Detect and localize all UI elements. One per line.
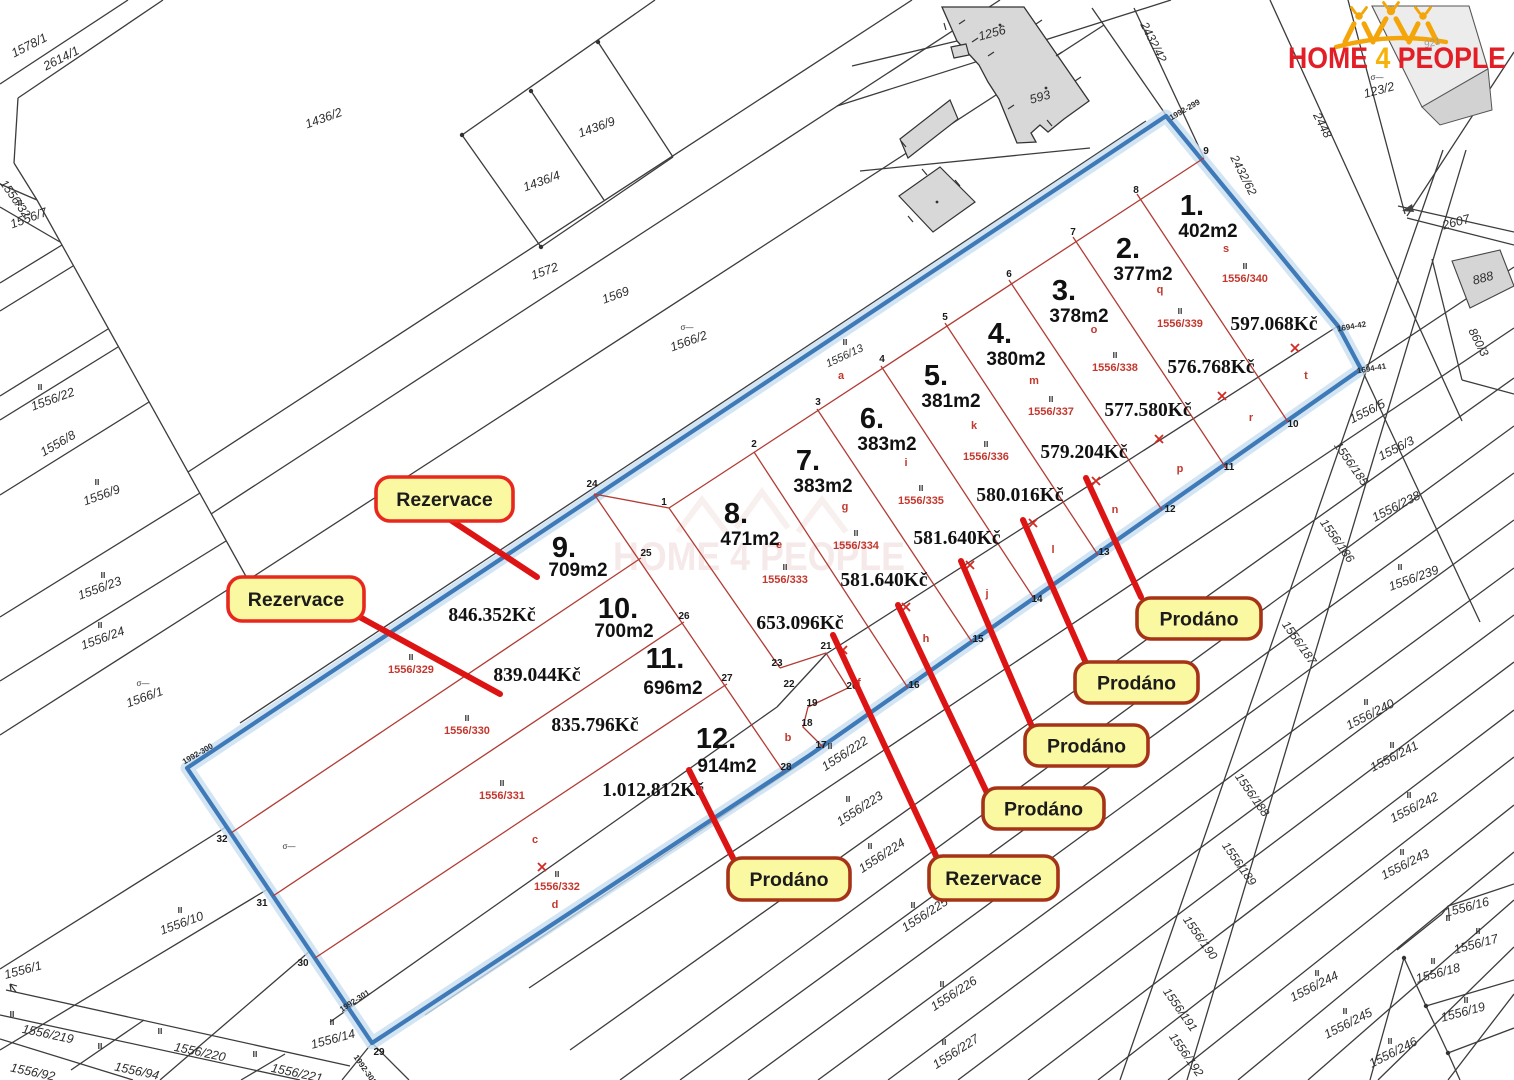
svg-text:Rezervace: Rezervace xyxy=(248,589,345,611)
svg-text:II: II xyxy=(95,477,100,487)
svg-text:835.796Kč: 835.796Kč xyxy=(551,715,639,736)
svg-text:q: q xyxy=(1157,284,1164,296)
svg-text:II: II xyxy=(98,1041,103,1051)
svg-text:Prodáno: Prodáno xyxy=(749,869,828,891)
svg-text:a: a xyxy=(838,370,845,382)
svg-text:380m2: 380m2 xyxy=(986,349,1045,370)
svg-text:II: II xyxy=(984,439,989,449)
svg-text:23: 23 xyxy=(771,658,783,669)
svg-text:r: r xyxy=(1249,412,1254,424)
svg-text:II: II xyxy=(38,382,43,392)
svg-text:II: II xyxy=(940,979,945,989)
svg-text:576.768Kč: 576.768Kč xyxy=(1167,357,1255,378)
svg-text:6: 6 xyxy=(1006,269,1012,280)
svg-text:1556/334: 1556/334 xyxy=(833,540,880,552)
svg-text:Prodáno: Prodáno xyxy=(1004,799,1083,821)
svg-text:1.: 1. xyxy=(1180,190,1204,222)
svg-text:Rezervace: Rezervace xyxy=(396,489,493,511)
svg-text:II: II xyxy=(330,1017,335,1027)
svg-text:7.: 7. xyxy=(796,445,820,477)
svg-text:σ—: σ— xyxy=(283,842,296,851)
svg-text:6.: 6. xyxy=(860,403,884,435)
svg-text:II: II xyxy=(942,1037,947,1047)
svg-text:II: II xyxy=(1243,261,1248,271)
svg-text:II: II xyxy=(1113,350,1118,360)
svg-text:29: 29 xyxy=(373,1047,385,1058)
svg-text:12.: 12. xyxy=(696,723,736,755)
svg-text:1556/337: 1556/337 xyxy=(1028,406,1074,418)
svg-text:1556/336: 1556/336 xyxy=(963,451,1009,463)
svg-text:Prodáno: Prodáno xyxy=(1047,736,1126,758)
svg-text:30: 30 xyxy=(297,958,309,969)
svg-text:i: i xyxy=(904,457,907,469)
svg-text:15: 15 xyxy=(972,634,984,645)
svg-text:914m2: 914m2 xyxy=(697,756,756,777)
svg-text:II: II xyxy=(1446,913,1451,923)
svg-text:s: s xyxy=(1223,243,1229,255)
svg-text:12: 12 xyxy=(1164,504,1176,515)
svg-text:383m2: 383m2 xyxy=(857,434,916,455)
svg-text:3.: 3. xyxy=(1052,275,1076,307)
svg-text:1556/339: 1556/339 xyxy=(1157,318,1203,330)
svg-text:II: II xyxy=(1343,1006,1348,1016)
svg-text:II: II xyxy=(1390,740,1395,750)
svg-text:Prodáno: Prodáno xyxy=(1159,609,1238,631)
svg-text:II: II xyxy=(1315,968,1320,978)
svg-text:7: 7 xyxy=(1070,227,1076,238)
svg-text:377m2: 377m2 xyxy=(1113,264,1172,285)
svg-text:p: p xyxy=(1177,463,1184,475)
svg-text:597.068Kč: 597.068Kč xyxy=(1230,314,1318,335)
svg-text:d: d xyxy=(552,899,559,911)
svg-text:j: j xyxy=(984,588,988,600)
svg-text:HOME 4 PEOPLE: HOME 4 PEOPLE xyxy=(1288,42,1506,75)
svg-text:577.580Kč: 577.580Kč xyxy=(1104,400,1192,421)
svg-text:13: 13 xyxy=(1098,547,1110,558)
svg-text:24: 24 xyxy=(586,479,598,490)
svg-text:19: 19 xyxy=(806,698,818,709)
svg-text:II: II xyxy=(555,869,560,879)
svg-text:846.352Kč: 846.352Kč xyxy=(448,605,536,626)
svg-text:II: II xyxy=(843,337,848,347)
svg-text:II: II xyxy=(1398,562,1403,572)
svg-text:653.096Kč: 653.096Kč xyxy=(756,613,844,634)
svg-text:378m2: 378m2 xyxy=(1049,306,1108,327)
svg-text:II: II xyxy=(178,905,183,915)
svg-text:381m2: 381m2 xyxy=(921,391,980,412)
svg-text:27: 27 xyxy=(721,673,733,684)
svg-text:II: II xyxy=(158,1026,163,1036)
svg-text:8.: 8. xyxy=(724,498,748,530)
svg-text:696m2: 696m2 xyxy=(643,678,702,699)
svg-text:1556/331: 1556/331 xyxy=(479,790,525,802)
svg-text:1556/335: 1556/335 xyxy=(898,495,944,507)
svg-text:c: c xyxy=(532,834,538,846)
svg-text:II: II xyxy=(911,900,916,910)
svg-text:18: 18 xyxy=(801,718,813,729)
svg-text:17: 17 xyxy=(815,740,827,751)
svg-text:II: II xyxy=(10,1009,15,1019)
svg-text:839.044Kč: 839.044Kč xyxy=(493,665,581,686)
svg-text:II: II xyxy=(919,483,924,493)
svg-text:II: II xyxy=(101,570,106,580)
svg-text:II: II xyxy=(1178,306,1183,316)
svg-text:32: 32 xyxy=(216,834,228,845)
svg-text:II: II xyxy=(465,713,470,723)
svg-text:1556/329: 1556/329 xyxy=(388,664,434,676)
svg-text:1.012.812Kč: 1.012.812Kč xyxy=(602,780,704,801)
svg-text:4.: 4. xyxy=(988,318,1012,350)
svg-text:Rezervace: Rezervace xyxy=(945,868,1042,890)
svg-text:1556/332: 1556/332 xyxy=(534,881,580,893)
svg-text:25: 25 xyxy=(640,548,652,559)
svg-text:21: 21 xyxy=(820,641,832,652)
svg-text:n: n xyxy=(1112,504,1119,516)
svg-text:700m2: 700m2 xyxy=(594,621,653,642)
svg-text:2.: 2. xyxy=(1116,233,1140,265)
svg-text:16: 16 xyxy=(908,680,920,691)
svg-text:9: 9 xyxy=(1203,146,1209,157)
svg-text:II: II xyxy=(868,841,873,851)
svg-text:5: 5 xyxy=(942,312,948,323)
svg-text:II: II xyxy=(1431,956,1436,966)
svg-text:b: b xyxy=(785,732,792,744)
svg-text:2: 2 xyxy=(751,439,757,450)
svg-text:5.: 5. xyxy=(924,360,948,392)
svg-text:II: II xyxy=(1407,790,1412,800)
svg-text:709m2: 709m2 xyxy=(548,560,607,581)
svg-text:II: II xyxy=(409,652,414,662)
svg-text:II: II xyxy=(98,620,103,630)
svg-text:14: 14 xyxy=(1031,594,1043,605)
svg-text:II: II xyxy=(1364,697,1369,707)
svg-text:II: II xyxy=(1476,926,1481,936)
svg-text:σ—: σ— xyxy=(137,679,150,688)
svg-text:h: h xyxy=(923,633,930,645)
svg-text:II: II xyxy=(1388,1036,1393,1046)
svg-text:1556/340: 1556/340 xyxy=(1222,273,1268,285)
svg-text:σ—: σ— xyxy=(681,323,694,332)
svg-text:1: 1 xyxy=(661,497,667,508)
svg-text:22: 22 xyxy=(783,679,795,690)
svg-text:11.: 11. xyxy=(646,643,685,675)
svg-text:581.640Kč: 581.640Kč xyxy=(913,528,1001,549)
svg-text:II: II xyxy=(846,794,851,804)
svg-text:3: 3 xyxy=(815,397,821,408)
svg-text:1556/338: 1556/338 xyxy=(1092,362,1138,374)
svg-text:580.016Kč: 580.016Kč xyxy=(976,485,1064,506)
svg-text:II: II xyxy=(828,741,833,751)
svg-text:471m2: 471m2 xyxy=(720,529,779,550)
svg-text:g: g xyxy=(842,501,849,513)
svg-text:10: 10 xyxy=(1287,419,1299,430)
svg-text:581.640Kč: 581.640Kč xyxy=(840,570,928,591)
svg-text:II: II xyxy=(1049,394,1054,404)
svg-text:II: II xyxy=(253,1049,258,1059)
svg-text:11: 11 xyxy=(1224,462,1235,473)
svg-text:26: 26 xyxy=(678,611,690,622)
svg-text:4: 4 xyxy=(879,354,885,365)
svg-text:II: II xyxy=(500,778,505,788)
svg-text:579.204Kč: 579.204Kč xyxy=(1040,442,1128,463)
svg-text:1556/333: 1556/333 xyxy=(762,574,808,586)
svg-text:II: II xyxy=(18,198,23,208)
svg-text:II: II xyxy=(1400,847,1405,857)
svg-text:m: m xyxy=(1029,375,1039,387)
svg-text:l: l xyxy=(1051,544,1054,556)
svg-text:II: II xyxy=(1464,995,1469,1005)
svg-text:383m2: 383m2 xyxy=(793,476,852,497)
svg-text:k: k xyxy=(971,420,978,432)
svg-text:8: 8 xyxy=(1133,185,1139,196)
svg-text:31: 31 xyxy=(256,898,268,909)
svg-text:t: t xyxy=(1304,370,1308,382)
svg-text:II: II xyxy=(783,562,788,572)
svg-text:28: 28 xyxy=(780,762,792,773)
svg-text:Prodáno: Prodáno xyxy=(1097,673,1176,695)
svg-text:1556/330: 1556/330 xyxy=(444,725,490,737)
svg-text:II: II xyxy=(854,528,859,538)
svg-text:402m2: 402m2 xyxy=(1178,221,1237,242)
